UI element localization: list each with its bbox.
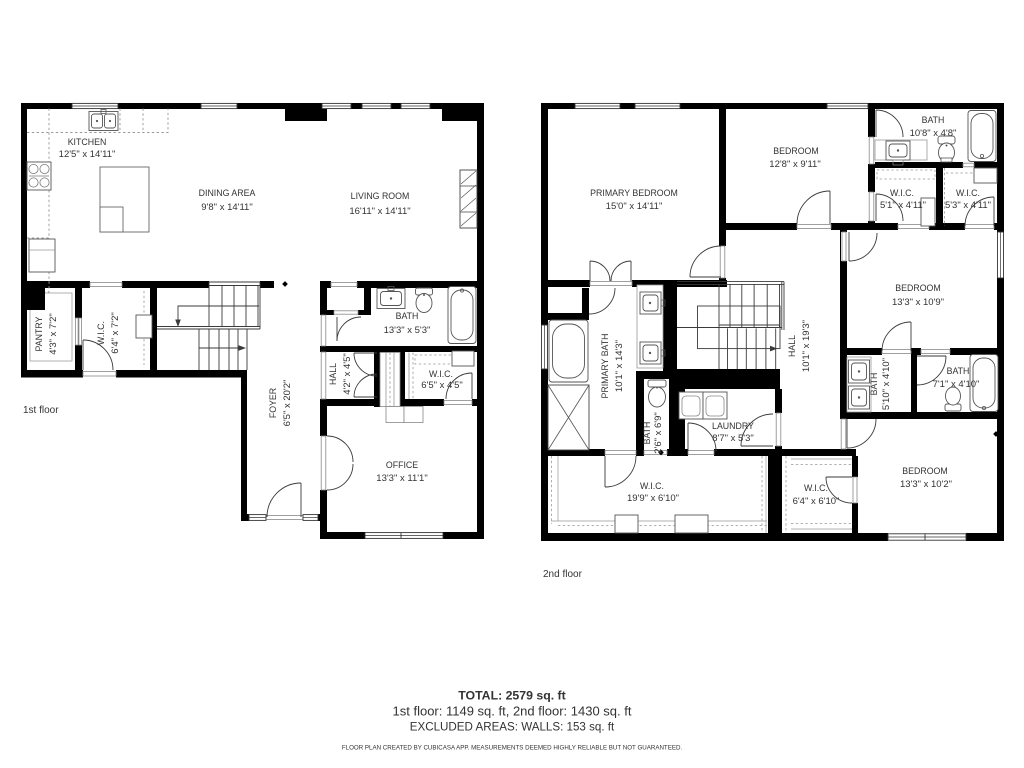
svg-text:1st floor: 1st floor (23, 405, 59, 416)
svg-text:12'8" x 9'11": 12'8" x 9'11" (769, 159, 820, 170)
svg-text:BATH: BATH (869, 373, 879, 396)
svg-text:W.I.C.: W.I.C. (429, 369, 453, 379)
svg-text:W.I.C.: W.I.C. (640, 481, 664, 491)
svg-text:BEDROOM: BEDROOM (773, 146, 818, 156)
svg-text:9'8" x 14'11": 9'8" x 14'11" (201, 202, 252, 213)
svg-text:BATH: BATH (642, 422, 652, 445)
svg-text:FOYER: FOYER (268, 388, 278, 418)
svg-text:HALL: HALL (787, 335, 797, 357)
svg-text:5'3" x 4'11": 5'3" x 4'11" (945, 200, 991, 211)
svg-text:4'2" x 4'5": 4'2" x 4'5" (342, 353, 353, 395)
svg-text:BEDROOM: BEDROOM (895, 283, 940, 293)
svg-text:6'5" x 20'2": 6'5" x 20'2" (282, 380, 293, 427)
svg-text:KITCHEN: KITCHEN (68, 137, 107, 147)
svg-text:PRIMARY BEDROOM: PRIMARY BEDROOM (590, 188, 678, 198)
svg-text:W.I.C.: W.I.C. (956, 188, 980, 198)
svg-text:13'3" x 10'9": 13'3" x 10'9" (892, 297, 944, 308)
svg-text:13'3" x 10'2": 13'3" x 10'2" (900, 479, 952, 490)
svg-text:13'3" x 11'1": 13'3" x 11'1" (376, 473, 427, 484)
svg-text:5'1" x 4'11": 5'1" x 4'11" (880, 200, 926, 211)
svg-text:15'0" x 14'11": 15'0" x 14'11" (606, 201, 663, 212)
svg-text:FLOOR PLAN CREATED BY CUBICASA: FLOOR PLAN CREATED BY CUBICASA APP. MEAS… (342, 745, 683, 752)
svg-text:8'7" x 5'3": 8'7" x 5'3" (712, 433, 754, 444)
svg-text:10'1" x 19'3": 10'1" x 19'3" (801, 320, 812, 372)
svg-text:BATH: BATH (947, 366, 970, 376)
svg-text:HALL: HALL (328, 363, 338, 385)
svg-text:BATH: BATH (922, 115, 945, 125)
svg-text:EXCLUDED AREAS: WALLS: 153 sq.: EXCLUDED AREAS: WALLS: 153 sq. ft (410, 721, 615, 734)
svg-text:19'9" x 6'10": 19'9" x 6'10" (627, 493, 679, 504)
svg-text:W.I.C.: W.I.C. (96, 321, 106, 345)
svg-text:BATH: BATH (396, 311, 419, 321)
svg-text:W.I.C.: W.I.C. (804, 483, 828, 493)
svg-text:OFFICE: OFFICE (386, 460, 418, 470)
svg-text:TOTAL: 2579 sq. ft: TOTAL: 2579 sq. ft (458, 689, 566, 703)
svg-text:12'5" x 14'11": 12'5" x 14'11" (59, 149, 116, 160)
svg-text:7'1" x 4'10": 7'1" x 4'10" (933, 379, 980, 390)
svg-text:6'4" x 6'10": 6'4" x 6'10" (793, 496, 840, 507)
svg-text:LAUNDRY: LAUNDRY (712, 421, 754, 431)
svg-text:PANTRY: PANTRY (34, 316, 44, 351)
svg-text:16'11" x 14'11": 16'11" x 14'11" (349, 206, 410, 217)
svg-text:1st floor: 1149 sq. ft, 2nd fl: 1st floor: 1149 sq. ft, 2nd floor: 1430 … (393, 704, 632, 719)
svg-text:2'6" x 6'9": 2'6" x 6'9" (653, 412, 664, 454)
svg-text:BEDROOM: BEDROOM (902, 466, 947, 476)
svg-text:DINING AREA: DINING AREA (199, 188, 256, 198)
svg-text:W.I.C.: W.I.C. (890, 188, 914, 198)
svg-text:13'3" x 5'3": 13'3" x 5'3" (384, 325, 431, 336)
svg-text:LIVING ROOM: LIVING ROOM (351, 191, 410, 201)
svg-text:10'1" x 14'3": 10'1" x 14'3" (614, 340, 625, 392)
svg-text:6'4" x 7'2": 6'4" x 7'2" (110, 312, 121, 354)
svg-text:4'3" x 7'2": 4'3" x 7'2" (48, 313, 59, 355)
svg-text:2nd floor: 2nd floor (543, 569, 583, 580)
svg-text:6'5" x 4'5": 6'5" x 4'5" (421, 380, 463, 391)
svg-text:10'8" x 4'8": 10'8" x 4'8" (910, 128, 957, 139)
svg-text:PRIMARY BATH: PRIMARY BATH (600, 333, 610, 398)
svg-text:5'10" x 4'10": 5'10" x 4'10" (881, 358, 892, 410)
